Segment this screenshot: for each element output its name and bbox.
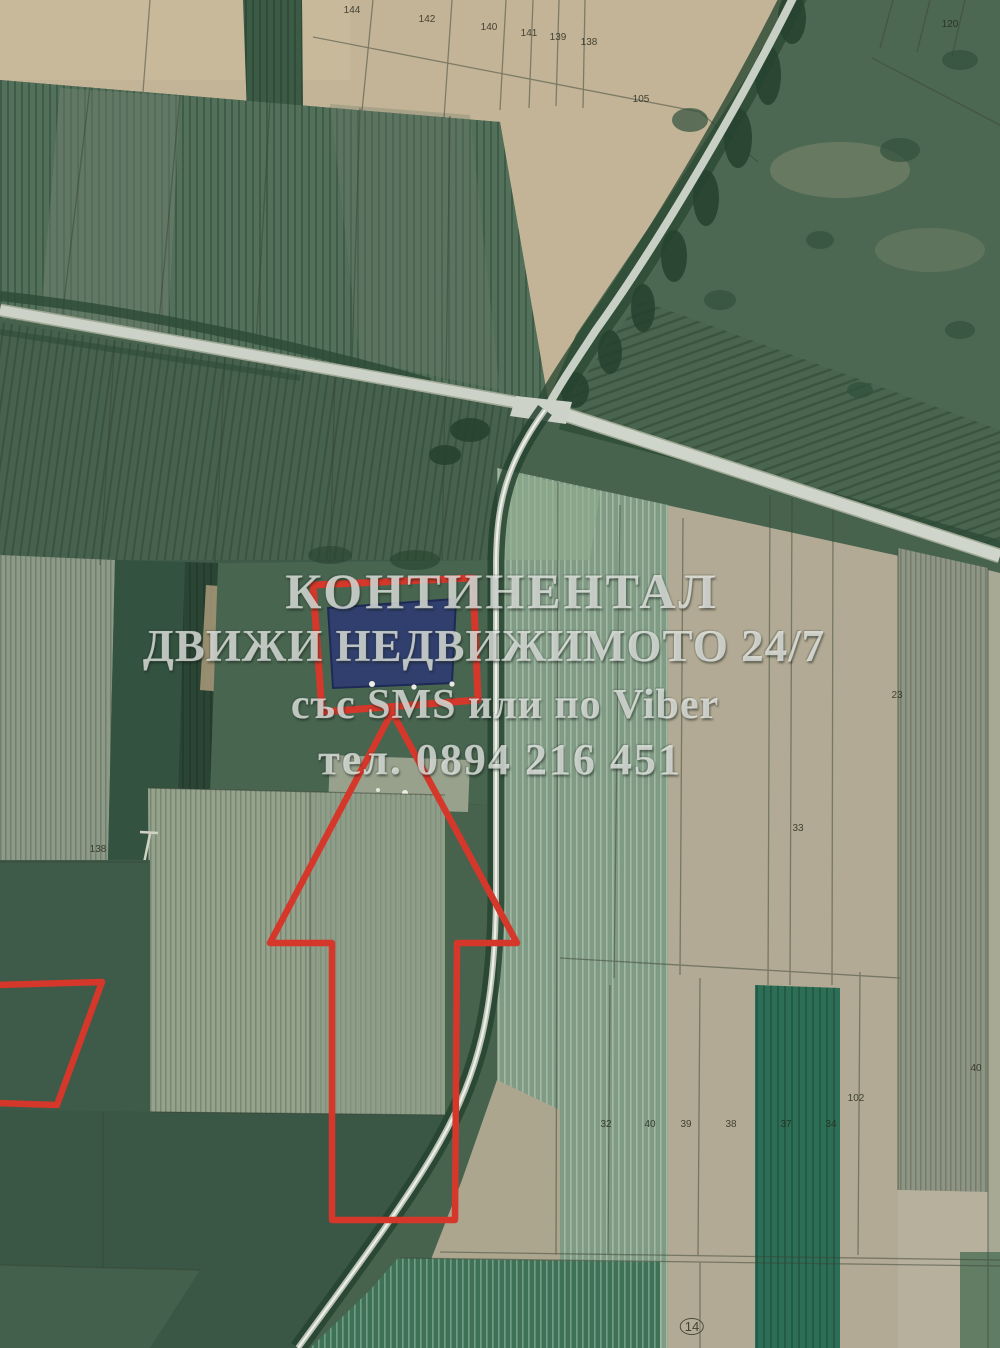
satellite-map-image: 1441421401411391381051202333138102324039… xyxy=(0,0,1000,1348)
highlighted-parcel-blue xyxy=(328,599,456,688)
building-dot xyxy=(376,788,380,792)
map-canvas xyxy=(0,0,1000,1348)
